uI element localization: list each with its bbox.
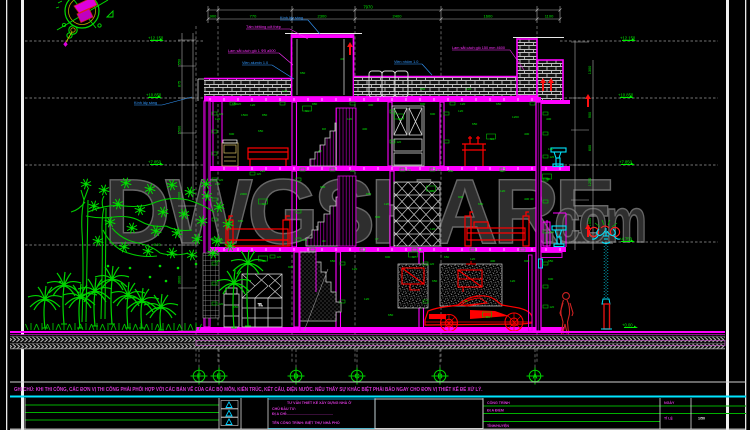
svg-text:650: 650 [388,313,393,317]
svg-text:120: 120 [550,305,555,309]
svg-text:C: C [354,374,359,381]
svg-text:1600: 1600 [484,14,494,19]
svg-text:ĐỊ A CHỈ:.....................: ĐỊ A CHỈ:...............................… [272,411,333,416]
svg-text:120: 120 [277,255,282,259]
svg-text:1500: 1500 [241,113,248,117]
svg-text:650: 650 [238,219,243,223]
svg-text:650: 650 [233,305,238,309]
svg-text:1300: 1300 [588,66,592,74]
svg-text:650: 650 [420,87,425,91]
svg-text:900: 900 [524,259,529,263]
svg-text:900: 900 [385,255,390,259]
svg-text:+8.00: +8.00 [152,243,161,247]
svg-text:550: 550 [178,59,182,65]
svg-text:TƯ VẤN THIẾT KẾ XÂY DỰNG NHÀ Ở: TƯ VẤN THIẾT KẾ XÂY DỰNG NHÀ Ở [287,400,352,405]
svg-text:120: 120 [460,102,465,106]
svg-text:120: 120 [219,238,224,242]
svg-text:400: 400 [362,127,367,131]
svg-text:F: F [197,374,202,381]
svg-text:650: 650 [366,192,371,196]
svg-text:1/50: 1/50 [698,417,705,421]
svg-text:B: B [437,374,442,381]
svg-text:Lam sắt cách gió 150 mm 4600: Lam sắt cách gió 150 mm 4600 [452,45,505,50]
svg-text:650: 650 [330,259,335,263]
svg-text:650: 650 [496,102,501,106]
svg-text:1500: 1500 [178,126,182,134]
svg-text:D: D [293,374,298,381]
svg-text:650: 650 [472,122,477,126]
svg-text:120: 120 [282,89,287,93]
svg-text:7970: 7970 [363,5,373,10]
svg-text:120: 120 [407,168,412,172]
svg-text:120: 120 [303,238,308,242]
svg-text:A: A [532,374,537,381]
svg-text:120: 120 [419,248,424,252]
svg-text:120: 120 [384,202,389,206]
svg-text:770: 770 [250,14,257,19]
svg-text:120: 120 [352,267,357,271]
svg-text:TỈ LỆ: TỈ LỆ [664,416,673,421]
svg-text:400: 400 [524,132,529,136]
svg-text:+7.850: +7.850 [148,160,162,165]
svg-text:650: 650 [448,169,453,173]
svg-text:CÔNG TRÌNH: CÔNG TRÌNH [487,400,510,405]
svg-text:650: 650 [444,255,449,259]
svg-text:Tấm bêtông cốt thép: Tấm bêtông cốt thép [246,25,281,29]
svg-text:120: 120 [458,109,463,113]
svg-text:400: 400 [490,259,495,263]
svg-text:120: 120 [548,147,553,151]
svg-text:Kính lấy sáng: Kính lấy sáng [280,16,303,20]
svg-text:900: 900 [229,132,234,136]
svg-text:900: 900 [458,195,463,199]
svg-text:850: 850 [262,113,267,117]
svg-text:1T: 1T [375,237,379,241]
svg-text:+4.750: +4.750 [619,237,633,242]
svg-text:900: 900 [548,277,553,281]
svg-text:900: 900 [430,112,435,116]
svg-text:TÊN CÔNG TRÌNH: BIỆT THỰ NHÀ P: TÊN CÔNG TRÌNH: BIỆT THỰ NHÀ PHỐ [272,420,340,425]
svg-text:875: 875 [178,81,182,87]
svg-text:400: 400 [546,117,551,121]
svg-text:+7.850: +7.850 [619,160,633,165]
svg-text:600: 600 [588,145,592,151]
svg-text:120: 120 [364,297,369,301]
svg-text:650: 650 [432,279,437,283]
svg-text:120: 120 [430,262,435,266]
svg-text:40: 40 [318,149,322,153]
svg-text:120: 120 [500,189,505,193]
svg-text:40: 40 [530,197,534,201]
svg-text:120: 120 [215,182,220,186]
svg-text:120: 120 [550,155,555,159]
svg-text:1500: 1500 [588,218,592,226]
svg-text:120: 120 [219,302,224,306]
svg-text:1200: 1200 [512,115,519,119]
svg-text:TL: TL [258,302,263,307]
svg-text:400: 400 [524,197,529,201]
svg-text:1250: 1250 [588,178,592,186]
svg-text:40: 40 [322,239,326,243]
svg-text:900: 900 [375,215,380,219]
svg-text:+0.00: +0.00 [622,323,633,328]
svg-text:NGÀY: NGÀY [664,400,675,405]
svg-text:3600: 3600 [178,276,182,284]
svg-text:120: 120 [250,103,255,107]
svg-text:900: 900 [210,14,217,19]
svg-text:650: 650 [300,71,305,75]
svg-text:120: 120 [550,230,555,234]
svg-text:Lam sắt cách gió 1 Φ5 a500: Lam sắt cách gió 1 Φ5 a500 [228,48,276,53]
svg-text:ĐỊ A ĐIỂM: ĐỊ A ĐIỂM [487,408,504,413]
svg-text:.com: .com [543,185,646,255]
svg-text:2400: 2400 [393,14,403,19]
svg-text:120: 120 [430,227,435,231]
svg-text:TỈNH/HUYỆN: TỈNH/HUYỆN [487,423,509,428]
svg-text:900: 900 [420,102,425,106]
svg-text:D8: D8 [322,127,326,131]
svg-text:120: 120 [347,117,352,121]
svg-text:900: 900 [320,185,325,189]
svg-text:120: 120 [257,172,262,176]
svg-text:120: 120 [510,279,515,283]
svg-text:120: 120 [237,102,242,106]
svg-text:880: 880 [350,169,355,173]
svg-text:650: 650 [478,202,483,206]
svg-text:650: 650 [548,259,553,263]
svg-text:120: 120 [466,87,471,91]
svg-text:120: 120 [219,112,224,116]
svg-text:40: 40 [464,299,468,303]
svg-text:650: 650 [258,129,263,133]
svg-text:Viền alumin 1.0: Viền alumin 1.0 [242,61,268,65]
svg-text:120: 120 [215,259,220,263]
svg-text:CHỦ ĐẦU TƯ:: CHỦ ĐẦU TƯ: [272,406,296,411]
svg-text:400: 400 [368,103,373,107]
svg-text:900: 900 [288,265,293,269]
svg-text:2000: 2000 [240,192,247,196]
svg-text:1100: 1100 [545,14,554,19]
svg-text:120: 120 [470,257,475,261]
svg-text:120: 120 [397,140,402,144]
svg-text:E: E [217,374,222,381]
svg-text:Viền nhôm 1.0: Viền nhôm 1.0 [394,60,418,64]
svg-text:120: 120 [437,168,442,172]
svg-text:900: 900 [588,112,592,118]
svg-text:40: 40 [340,57,344,61]
svg-text:2300: 2300 [318,14,328,19]
svg-text:880: 880 [312,102,317,106]
svg-text:120: 120 [219,178,224,182]
svg-text:120: 120 [215,117,220,121]
svg-text:Kính lấy sáng: Kính lấy sáng [134,101,157,105]
